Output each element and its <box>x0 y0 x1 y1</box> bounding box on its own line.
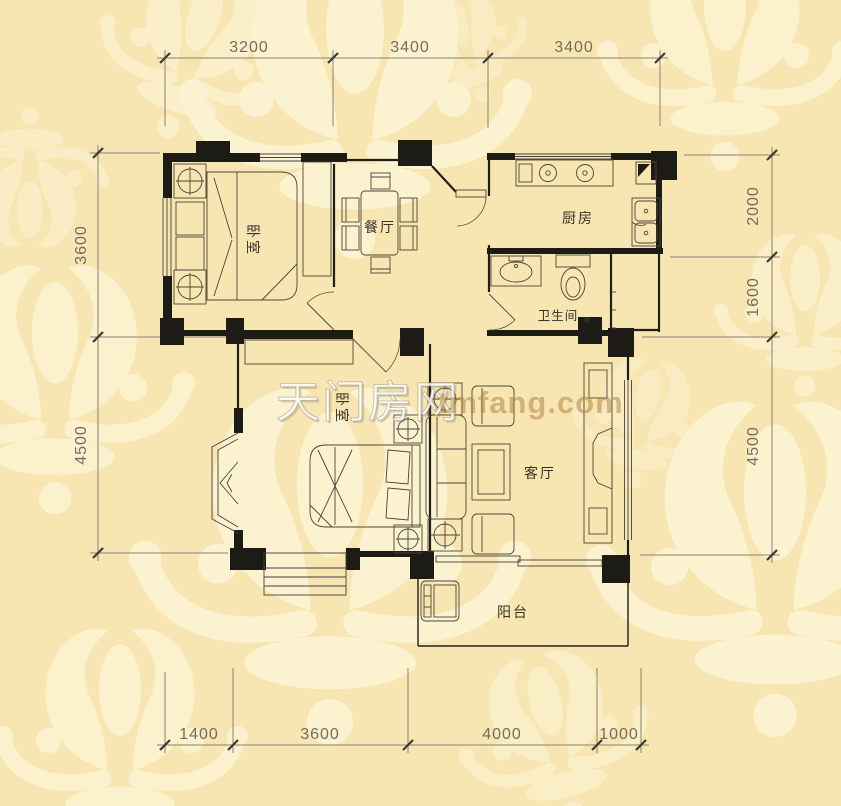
watermark-en: tmfang.com <box>438 385 624 420</box>
dim-top-3: 3400 <box>554 39 594 56</box>
floorplan-page: 3200 3400 3400 1400 3600 4000 1000 3600 … <box>0 0 841 806</box>
dim-bottom-2: 3600 <box>300 726 340 743</box>
floorplan-svg: 3200 3400 3400 1400 3600 4000 1000 3600 … <box>0 0 841 806</box>
watermark: 天门房网 天门房网 tmfang.com <box>276 378 624 429</box>
dim-left-2: 4500 <box>73 425 90 465</box>
bathroom-door <box>489 294 515 330</box>
dim-top-2: 3400 <box>390 39 430 56</box>
dim-bottom-4: 1000 <box>599 726 639 743</box>
bedroom-main-door <box>353 339 400 372</box>
dim-right-1: 2000 <box>745 186 762 226</box>
dim-right-2: 1600 <box>745 277 762 317</box>
room-label-dining: 餐厅 <box>364 219 396 235</box>
dim-left-1: 3600 <box>73 225 90 265</box>
room-label-balcony: 阳台 <box>497 604 529 620</box>
bedroom-top-door <box>307 292 334 330</box>
dim-bottom-1: 1400 <box>179 726 219 743</box>
watermark-cn: 天门房网 <box>276 378 460 427</box>
dim-right-3: 4500 <box>745 426 762 466</box>
entry-door <box>456 190 486 226</box>
kitchen-furniture <box>516 160 660 246</box>
room-label-bathroom: 卫生间 <box>538 309 579 323</box>
room-label-living: 客厅 <box>524 465 556 481</box>
dim-top-1: 3200 <box>229 39 269 56</box>
room-label-kitchen: 厨房 <box>562 210 594 226</box>
dim-bottom-3: 4000 <box>482 726 522 743</box>
room-label-bedroom-top: 卧室 <box>245 224 261 256</box>
